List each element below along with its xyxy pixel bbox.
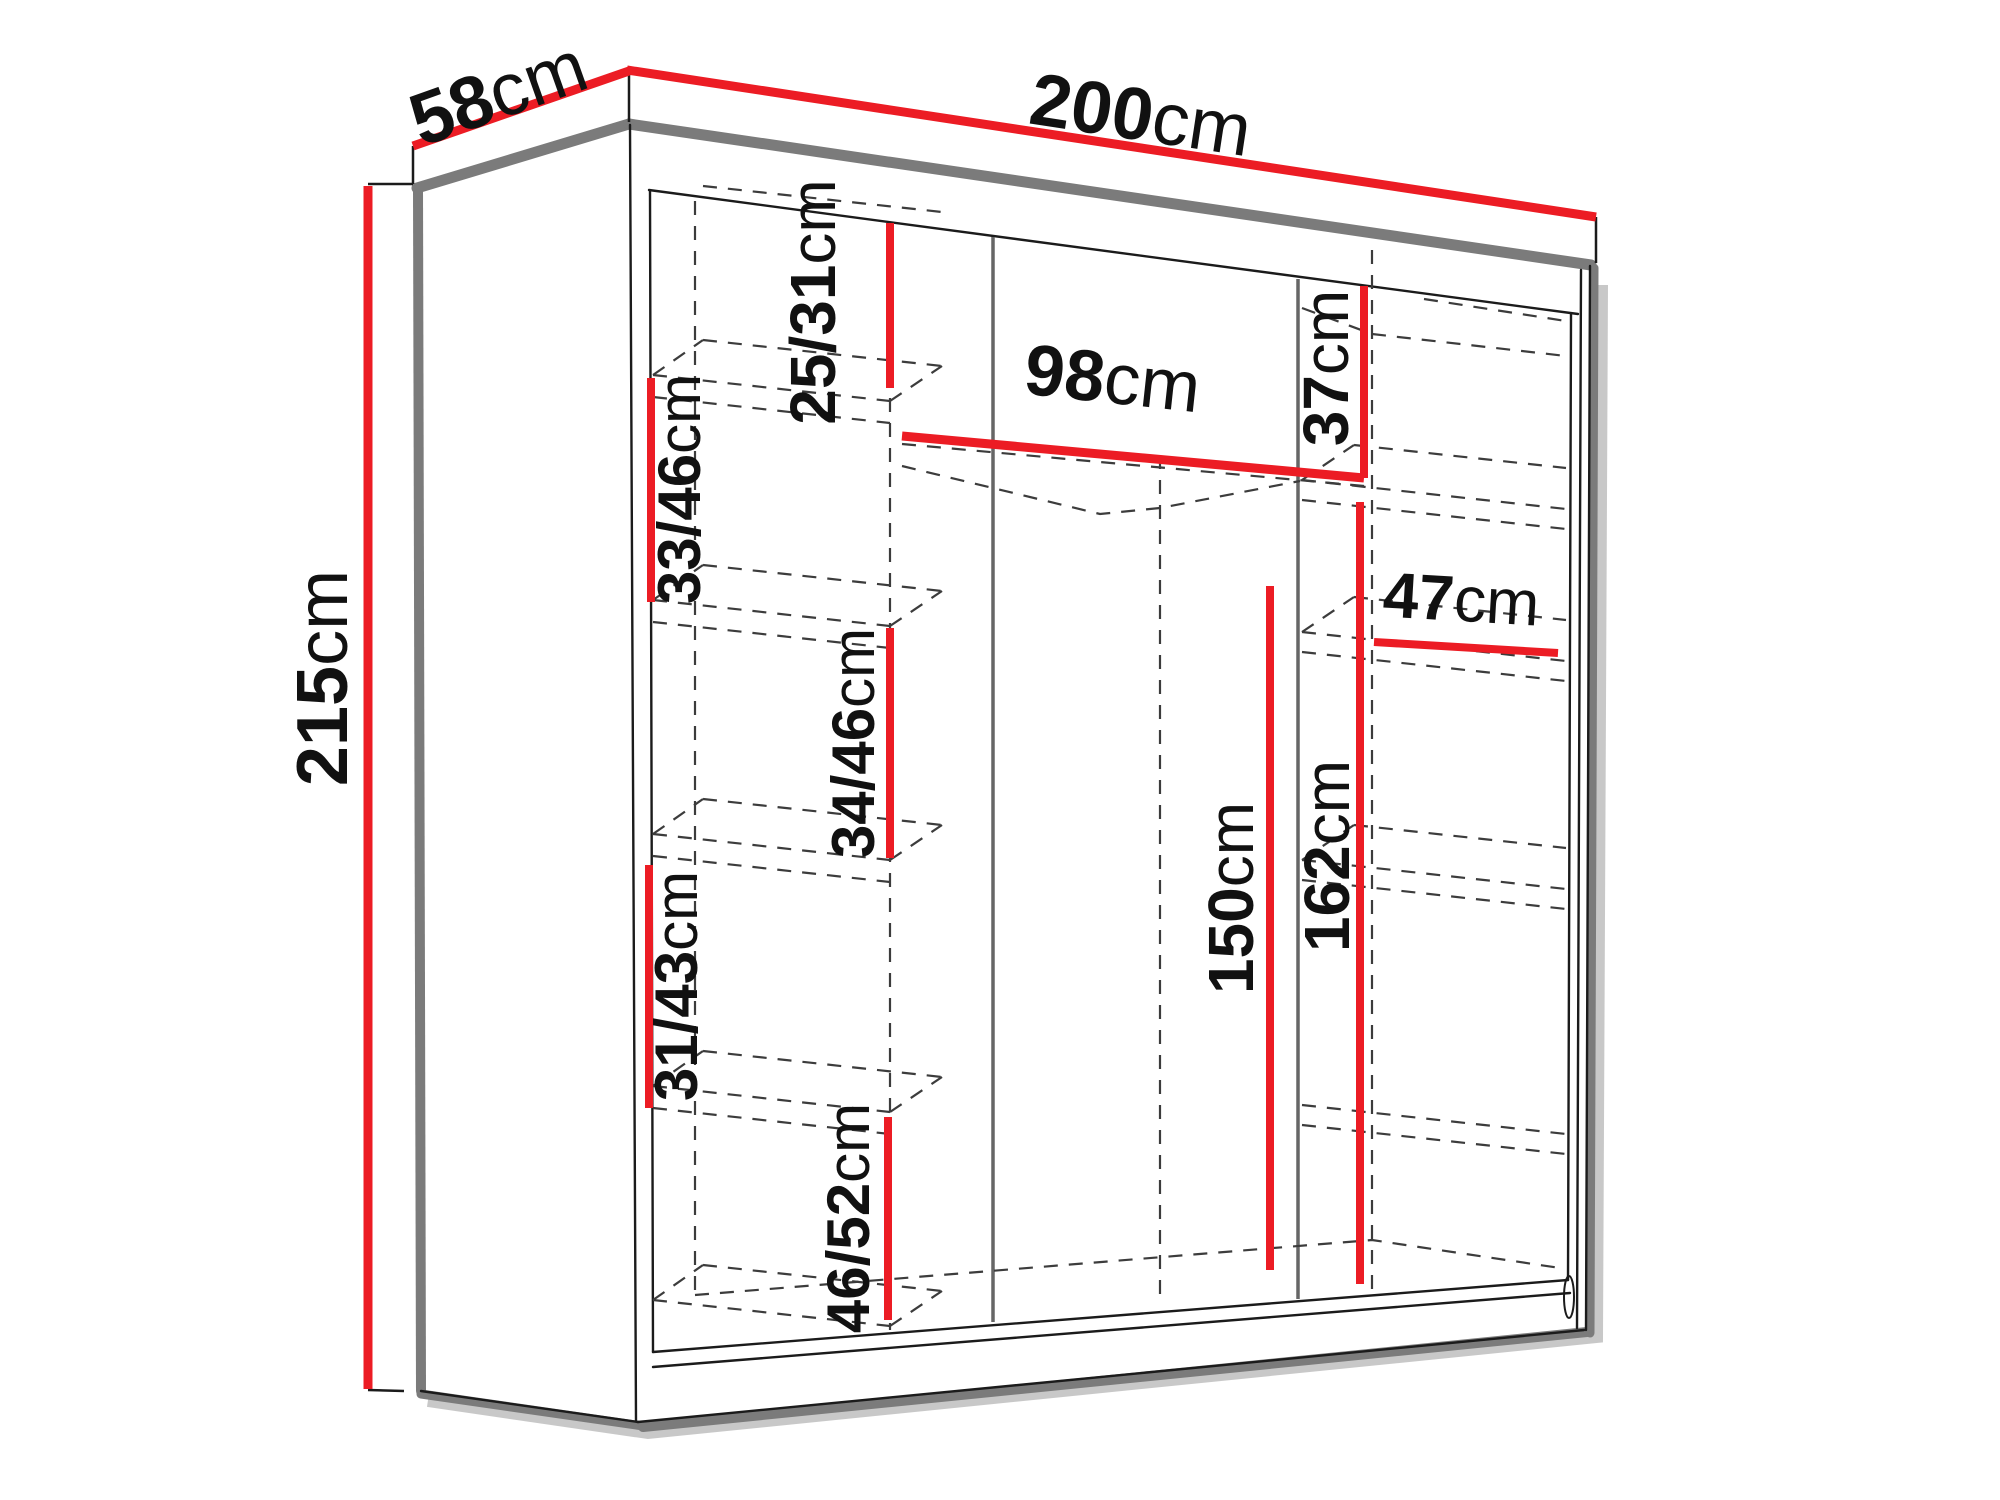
left-edge (418, 189, 421, 1391)
front-right-edge-mid (1577, 270, 1581, 1328)
width-label: 200cm (1025, 56, 1257, 171)
tick (368, 1390, 404, 1391)
front-left-edge-outer (630, 125, 636, 1421)
hanging-rail-dashed (902, 466, 1300, 514)
right-edge-shadow (1590, 268, 1594, 1333)
shelf-dashed-line (1302, 480, 1566, 509)
floor-edge (638, 1330, 1584, 1422)
hanging-height-label: 150cm (1195, 802, 1267, 994)
hanging-width-label: 98cm (1021, 330, 1205, 429)
top-shelf-label: 25/31cm (777, 179, 849, 424)
diagram-canvas: 58cm 200cm 215cm 25/31cm 33/46cm 34/46cm… (0, 0, 2000, 1500)
left-shelf-1-label: 33/46cm (646, 374, 713, 604)
middle-height-label: 162cm (1291, 760, 1363, 952)
wardrobe-outer-edges (417, 124, 1594, 1427)
wardrobe-outline (421, 125, 1590, 1422)
shelf-depth-dashed (653, 799, 942, 860)
left-shelf-3-label: 31/43cm (643, 871, 710, 1101)
dimension-ticks (368, 71, 1596, 1391)
shelf-dashed-line (1302, 1105, 1566, 1134)
dim-line-right-shelf-width-47 (1374, 642, 1558, 653)
right-top-label: 37cm (1290, 290, 1362, 447)
shadow-path (428, 285, 1601, 1432)
left-shelf-4-label: 46/52cm (815, 1103, 882, 1333)
drop-shadow (428, 285, 1601, 1432)
left-shelf-2-label: 34/46cm (820, 628, 887, 858)
door-guide-detail (1564, 1276, 1574, 1318)
interior-right-edge (1568, 314, 1571, 1280)
plinth-bottom-shadow-edge (643, 1332, 1587, 1427)
hanging-shelf-dashed (902, 444, 1364, 486)
dimension-labels: 58cm 200cm 215cm 25/31cm 33/46cm 34/46cm… (283, 23, 1542, 1333)
dimension-lines (368, 70, 1596, 1389)
right-shelf-width-label: 47cm (1381, 558, 1541, 639)
wardrobe-dimension-diagram: 58cm 200cm 215cm 25/31cm 33/46cm 34/46cm… (0, 0, 2000, 1500)
height-label: 215cm (283, 570, 363, 786)
front-left-edge-inner (650, 191, 653, 1352)
